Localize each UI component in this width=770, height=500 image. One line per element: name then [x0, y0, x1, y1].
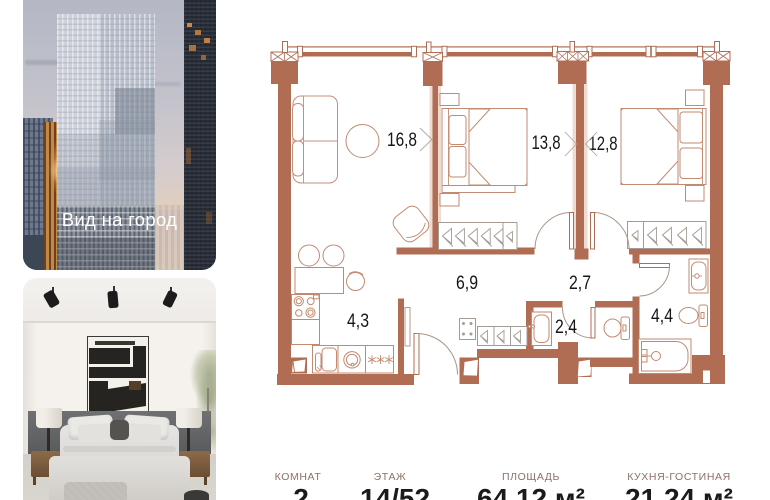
- svg-text:2,4: 2,4: [555, 317, 577, 338]
- svg-text:13,8: 13,8: [532, 133, 561, 154]
- svg-text:6,9: 6,9: [456, 273, 478, 294]
- svg-text:4,4: 4,4: [651, 306, 673, 327]
- svg-text:16,8: 16,8: [387, 130, 417, 151]
- svg-text:4,3: 4,3: [347, 311, 369, 332]
- svg-text:2,7: 2,7: [569, 273, 591, 294]
